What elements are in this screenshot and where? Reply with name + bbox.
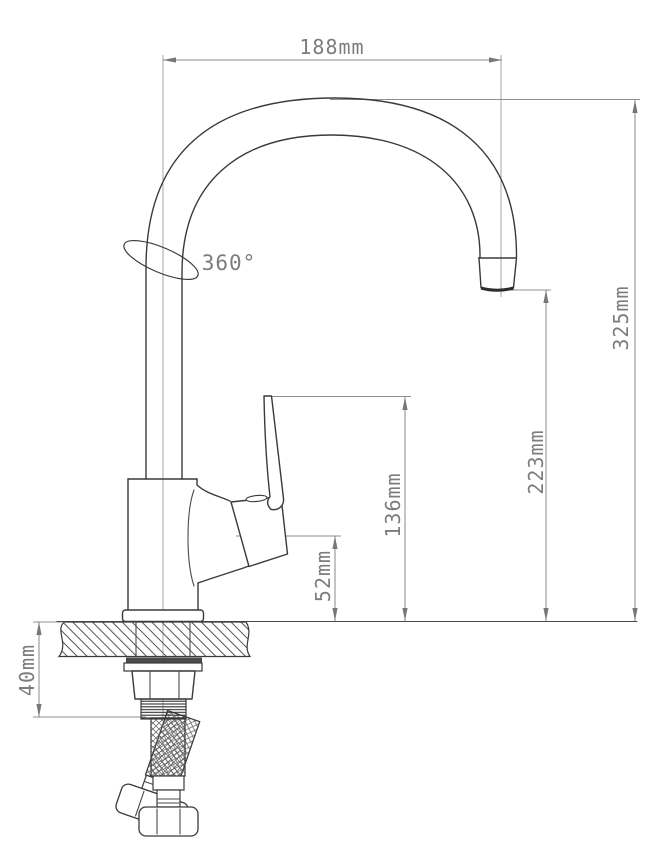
mounting-nut <box>132 671 195 699</box>
countertop-hatched-block <box>59 622 250 657</box>
rotation-ellipse <box>119 233 202 287</box>
dimension-labels: 188mm 360° 325mm 223mm 136mm 52mm 40mm <box>15 35 633 696</box>
supply-hoses <box>114 705 217 836</box>
faucet-body <box>128 479 249 610</box>
dim-label-mounting-depth: 40mm <box>15 644 39 696</box>
threaded-shank <box>141 699 186 719</box>
faucet-outline <box>119 98 516 622</box>
spout-inner-curve <box>182 135 480 479</box>
hose-ferrule-vertical <box>153 776 184 790</box>
drawing-page: 188mm 360° 325mm 223mm 136mm 52mm 40mm <box>0 0 665 857</box>
metal-washer <box>124 663 202 671</box>
dim-label-total-height: 325mm <box>609 285 633 350</box>
countertop-section <box>59 622 250 657</box>
rubber-washer <box>126 658 202 664</box>
body-housing-intersection <box>188 490 194 586</box>
dim-label-spout-reach: 188mm <box>299 35 364 59</box>
spout-outer-curve <box>146 98 517 479</box>
dim-label-valve-center-height: 52mm <box>311 550 335 602</box>
dim-label-outlet-height: 223mm <box>524 429 548 494</box>
braided-sleeve-vertical <box>151 718 185 776</box>
aerator <box>481 288 514 290</box>
mounting-hardware <box>124 658 202 720</box>
handle-lever <box>264 396 284 510</box>
mounting-flange <box>123 610 204 622</box>
dim-label-handle-top-height: 136mm <box>381 472 405 537</box>
faucet-technical-drawing: 188mm 360° 325mm 223mm 136mm 52mm 40mm <box>0 0 665 857</box>
spout-tip <box>479 258 517 290</box>
hex-fitting-vertical <box>139 807 198 836</box>
rotation-label: 360° <box>202 251 257 275</box>
